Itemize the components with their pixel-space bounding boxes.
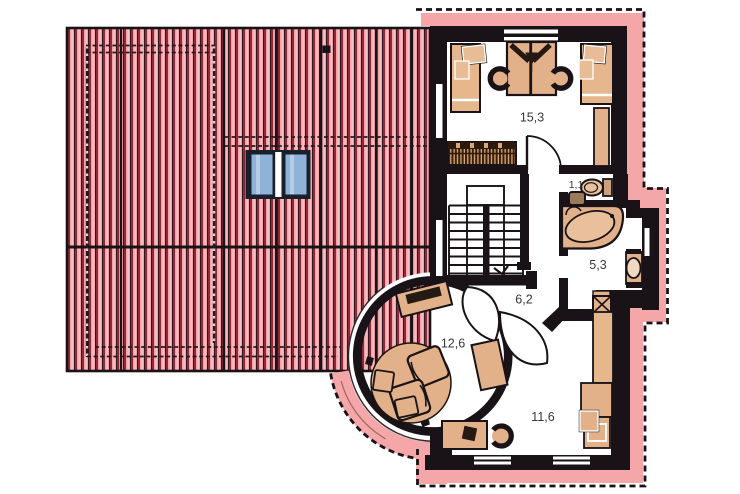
svg-text:6,2: 6,2 [515, 293, 532, 307]
svg-text:5,3: 5,3 [589, 258, 606, 272]
svg-text:11,6: 11,6 [531, 410, 554, 424]
svg-text:1,1: 1,1 [569, 179, 584, 191]
svg-text:15,3: 15,3 [520, 111, 544, 125]
svg-text:12,6: 12,6 [441, 337, 465, 351]
